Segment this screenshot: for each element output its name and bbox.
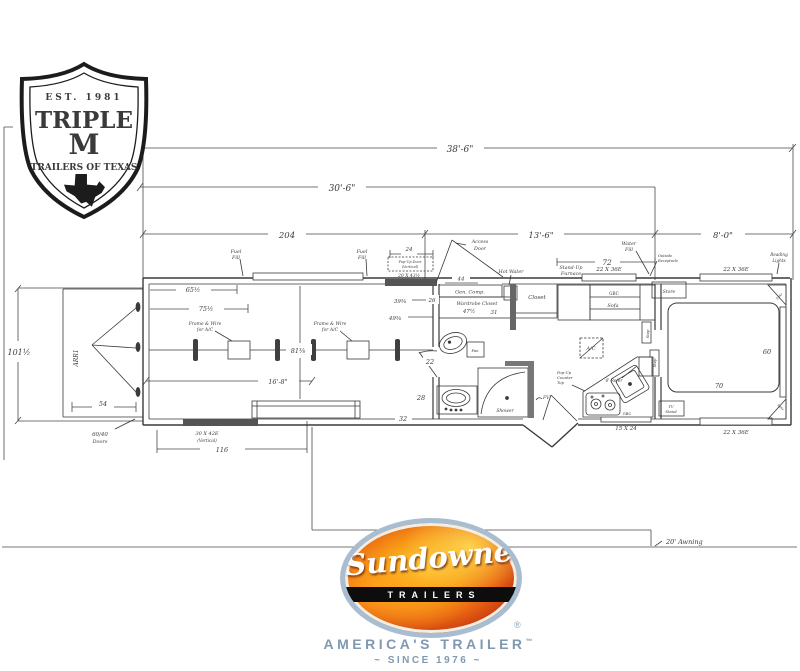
dim-overall-length: 38'-6" (447, 145, 474, 155)
frame-wire-2-l1: Frame & Wire (313, 321, 347, 327)
dim-39: 39⅜ (394, 299, 407, 305)
logo-est: EST. 1981 (45, 93, 122, 103)
floorplan-page: 38'-6" 30'-6" 204 13'-6" 8'-0" 101½ 65½ … (0, 0, 800, 671)
dim-24: 24 (405, 247, 413, 253)
refer-label: 6' Refer (606, 378, 624, 383)
gbc-kitchen-label: GBC (623, 411, 632, 416)
dim-28: 28 (416, 394, 425, 402)
door-panels (92, 308, 136, 392)
toilet (436, 329, 469, 357)
door-hinges (136, 302, 141, 397)
frame-wire-2-l2: for A/C (321, 327, 339, 333)
dim-bed-length: 60 (763, 348, 771, 356)
tagline-text: AMERICA'S TRAILER (323, 636, 525, 652)
fuel-fill-2-l1: Fuel (356, 249, 368, 255)
dim-116: 116 (216, 446, 228, 454)
hot-water-label: Hot Water (498, 269, 525, 275)
fv-label: FV (542, 395, 550, 401)
fuel-fill-1-l1: Fuel (230, 249, 242, 255)
popup-counter-l3: Top (557, 380, 565, 385)
arr1-label: ARR1 (73, 349, 80, 367)
fuel-fill-1-l2: Fill (231, 255, 240, 261)
popup-door-l1: Pop-Up Door (398, 260, 422, 264)
dim-75: 75½ (199, 305, 214, 313)
frame-wire-1-l1: Frame & Wire (188, 321, 222, 327)
dim-horse-area: 204 (278, 231, 295, 241)
floor-chest-lines (252, 401, 360, 418)
dim-65: 65½ (186, 286, 201, 294)
furnace-l1: Stand-Up (560, 265, 583, 271)
doors-60-40-l2: Doors (92, 439, 108, 445)
window-22x36-bed-top: 22 X 36E (722, 267, 748, 273)
furnace-l2: Furnace (560, 271, 581, 277)
ac-frame-box-2 (347, 341, 369, 359)
speaker-top-label: Spkr (775, 292, 784, 301)
sofa-label: Sofa (607, 303, 618, 309)
gen-comp-label: Gen. Comp. (455, 290, 485, 296)
left-border-line (4, 127, 13, 460)
window-sill-lq (582, 274, 636, 281)
step-2-label: Step (652, 358, 657, 367)
trademark-mark: ™ (526, 638, 533, 645)
awning-label: 20' Awning (665, 538, 703, 546)
trailer-outline (143, 273, 791, 447)
fuel-fill-2-l2: Fill (357, 255, 366, 261)
sundowner-since: ~ SINCE 1976 ~ (316, 655, 540, 666)
dim-81: 81⅜ (291, 347, 306, 355)
dim-width: 101½ (7, 348, 30, 357)
dim-neck-length: 8'-0" (713, 231, 733, 241)
dim-box-length: 30'-6" (329, 184, 356, 194)
dim-49: 49⅜ (388, 316, 402, 322)
window-15x24-label: 15 X 24 (615, 426, 637, 432)
access-door-l2: Door (473, 246, 487, 252)
dim-47: 47½ (462, 308, 475, 315)
wardrobe-box (439, 297, 512, 318)
closet-walls (516, 284, 557, 318)
side-shelf-strip (780, 307, 786, 397)
registered-mark: ® (514, 620, 521, 630)
divider-wall-horse-lq (433, 284, 439, 419)
dim-16-8: 16'-8" (268, 378, 287, 386)
ac-frame-box-1 (228, 341, 250, 359)
window-22x36-bed-bottom: 22 X 36E (722, 430, 748, 436)
gbc-sofa-label: GBC (609, 291, 619, 296)
access-door-l1: Access (471, 239, 489, 245)
logo-m: M (69, 128, 100, 161)
window-sill-bed-bottom (700, 418, 772, 425)
bath-wall-dark (528, 361, 534, 418)
sundowner-oval: TRAILERS Sundowner (340, 518, 522, 638)
dim-bed-width: 70 (715, 382, 723, 390)
dim-31: 31 (491, 310, 498, 316)
shower-label: Shower (496, 408, 514, 414)
ac-unit-label: A/C (585, 346, 595, 352)
store-label: Store (663, 289, 676, 295)
reading-lights-l1: Reading (769, 252, 788, 257)
window-22x36-lq: 22 X 36E (595, 267, 621, 273)
dim-30-6-line (137, 183, 655, 191)
dim-lq-length: 13'-6" (528, 231, 553, 241)
door-30x42-sill (183, 419, 258, 426)
outside-receptacle-l2: Receptacle (657, 259, 678, 263)
vanity-sink (437, 386, 477, 414)
dim-22: 22 (425, 358, 434, 366)
outside-receptacle-l1: Outside (658, 254, 672, 258)
popup-door-size: 20 X 43½ (397, 272, 420, 279)
closet-label: Closet (528, 295, 546, 301)
fan-label: Fan (470, 348, 479, 353)
dim-26: 26 (428, 298, 436, 304)
window-sill-bed-top (700, 274, 772, 281)
tv-stand-l2: Stand (665, 409, 677, 414)
sundowner-band: TRAILERS (345, 587, 517, 602)
sundowner-script: Sundowner (344, 534, 518, 583)
wardrobe-label: Wardrobe Closet (457, 301, 498, 307)
doors-60-40-l1: 60/40 (92, 432, 108, 438)
dim-54: 54 (99, 400, 107, 408)
closet-wall-left (510, 284, 516, 330)
hall-wall-stub (505, 361, 531, 366)
logo-trailers-of-texas: TRAILERS OF TEXAS (31, 163, 138, 173)
popup-door-sill (385, 279, 437, 286)
popup-door-l2: (Vertical) (402, 265, 419, 269)
sofa-box (590, 285, 655, 320)
divider-wall-neck (655, 284, 661, 419)
floor-chest (252, 401, 360, 418)
reading-lights-l2: Lights (771, 258, 785, 263)
water-fill-l1: Water (622, 241, 637, 247)
lq-mid-section (419, 240, 577, 421)
roof-vent-strip (253, 273, 363, 280)
sundowner-tagline: AMERICA'S TRAILER™ (316, 636, 540, 652)
dim-72: 72 (602, 258, 612, 267)
doors-60-40-leader (115, 419, 135, 429)
dim-16-8-line (143, 377, 315, 385)
door-30x42-l1: 30 X 42E (195, 431, 218, 437)
door-30x42-l2: (Vertical) (197, 438, 217, 443)
step-1-label: Step (645, 329, 650, 338)
frame-wire-1-l2: for A/C (196, 327, 214, 333)
water-fill-l2: Fill (624, 247, 633, 253)
fv-mark (536, 398, 542, 400)
triple-m-logo: EST. 1981 TRIPLE M TRAILERS OF TEXAS (22, 64, 147, 217)
sundowner-logo: TRAILERS Sundowner ® AMERICA'S TRAILER™ … (316, 516, 540, 671)
dim-32: 32 (399, 415, 407, 423)
dim-44: 44 (457, 277, 465, 283)
furnace-box (558, 285, 590, 320)
